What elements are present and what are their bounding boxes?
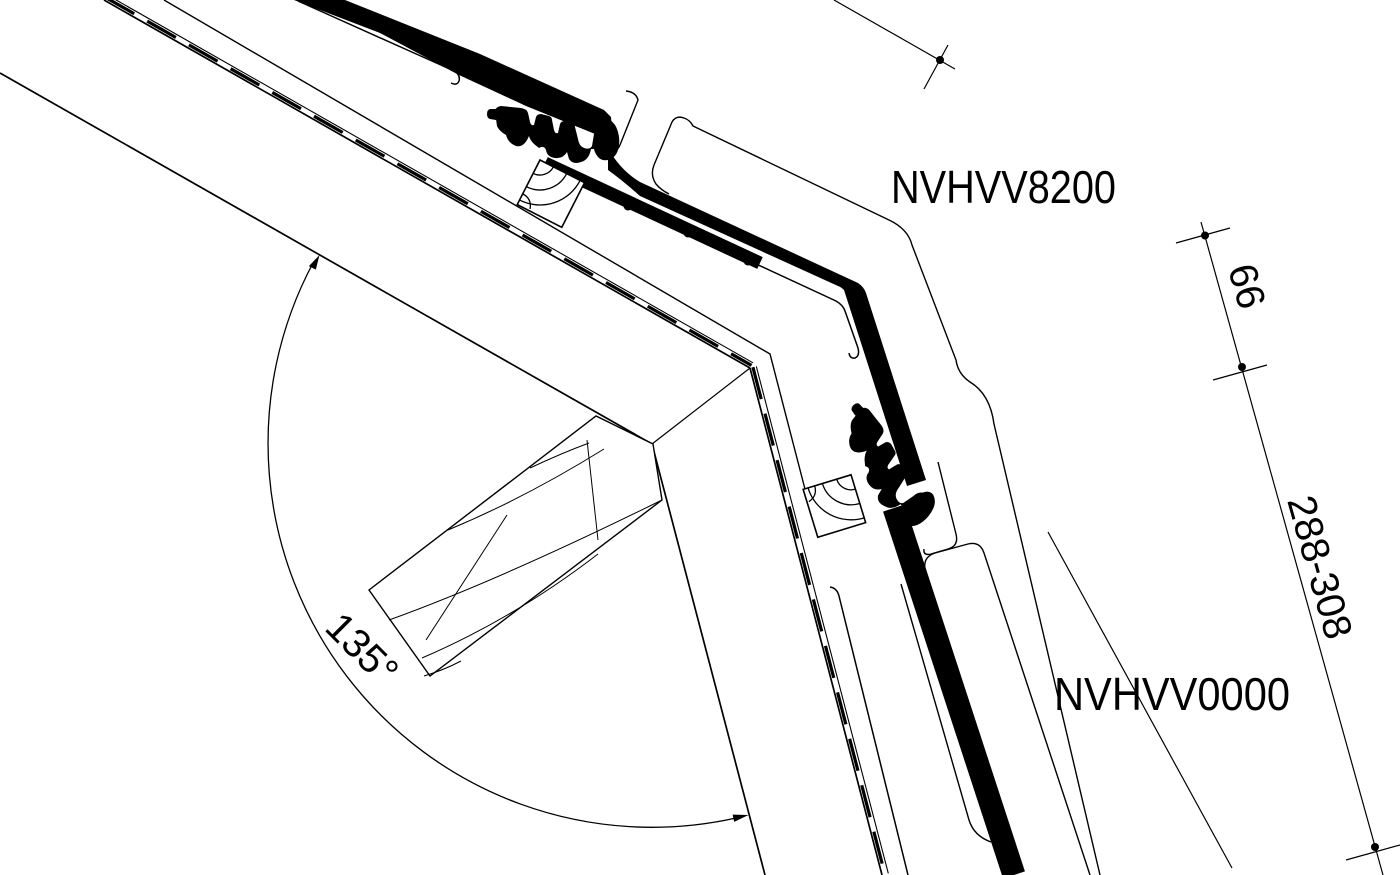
svg-text:NVHVV0000: NVHVV0000 — [1054, 668, 1290, 720]
svg-text:NVHVV8200: NVHVV8200 — [891, 161, 1116, 213]
